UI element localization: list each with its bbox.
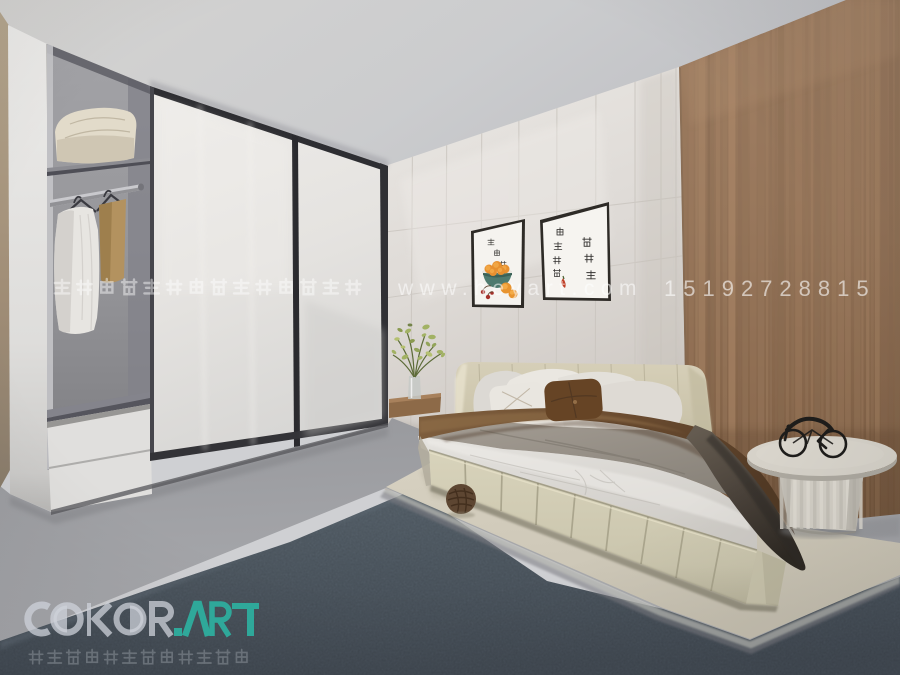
svg-text:15192728815: 15192728815 xyxy=(664,276,876,301)
svg-text:www.heyart.com: www.heyart.com xyxy=(397,277,643,300)
